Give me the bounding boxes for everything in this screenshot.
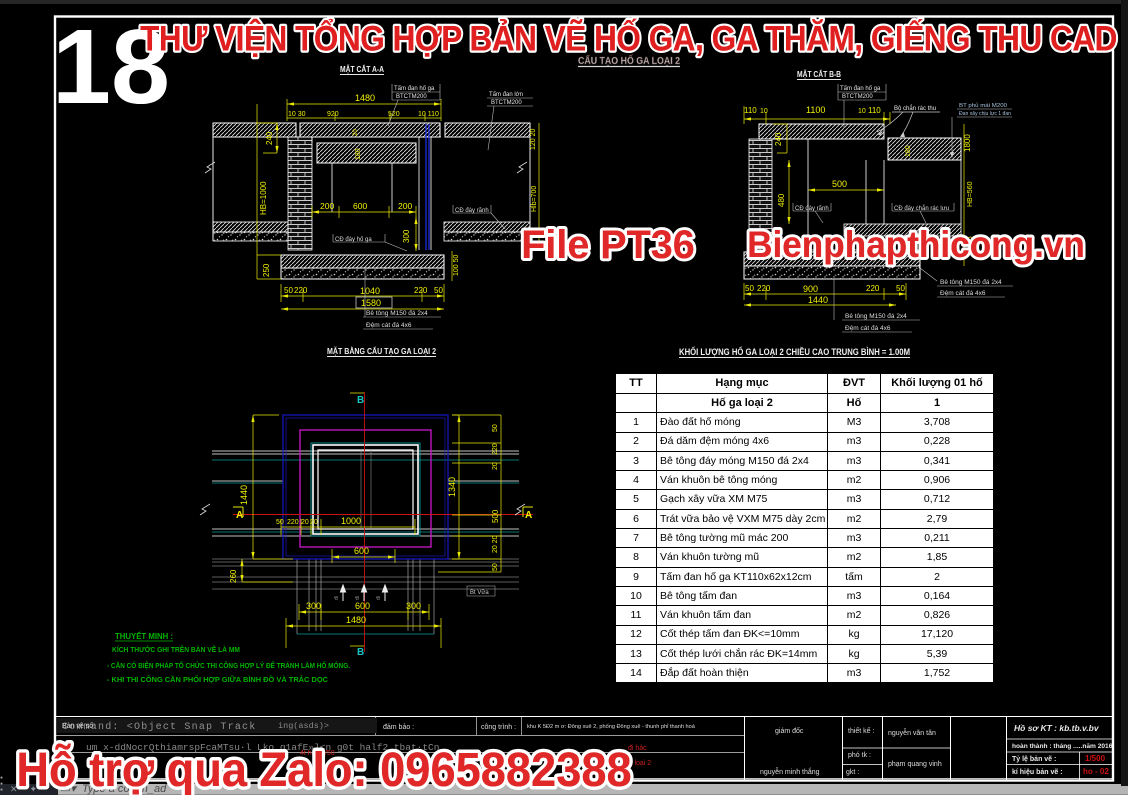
svg-text:KÍCH THƯỚC GHI TRÊN BẢN VẼ LÀ: KÍCH THƯỚC GHI TRÊN BẢN VẼ LÀ MM (112, 645, 240, 654)
svg-text:50: 50 (434, 286, 443, 295)
svg-text:phạm quang vinh: phạm quang vinh (888, 761, 942, 768)
svg-text:Bộ chắn rác thu: Bộ chắn rác thu (894, 105, 936, 112)
svg-text:200: 200 (320, 201, 334, 211)
svg-text:Hlb=700: Hlb=700 (531, 186, 538, 212)
svg-text:KHỐI LƯỢNG HỐ GA LOẠI 2 CHIỀU: KHỐI LƯỢNG HỐ GA LOẠI 2 CHIỀU CAO TRUNG … (679, 346, 910, 358)
svg-text:260: 260 (229, 569, 238, 583)
svg-text:- KHI THI CÔNG CẦN PHỐI HỢP GI: - KHI THI CÔNG CẦN PHỐI HỢP GIỮA BÌNH ĐỒ… (107, 674, 329, 684)
svg-text:Tấm đan hố ga: Tấm đan hố ga (394, 86, 435, 92)
svg-text:1440: 1440 (239, 485, 249, 505)
svg-text:BTCTM200: BTCTM200 (842, 94, 873, 100)
svg-text:10 110: 10 110 (418, 111, 439, 118)
svg-text:Tỷ lệ bản vẽ :: Tỷ lệ bản vẽ : (1012, 756, 1056, 763)
svg-text:nguyễn văn tân: nguyễn văn tân (888, 728, 936, 737)
svg-text:Bê tông M150 đá 2x4: Bê tông M150 đá 2x4 (845, 313, 907, 320)
svg-text:Đan xây chịu lực 1 đan: Đan xây chịu lực 1 đan (959, 111, 1011, 117)
svg-text:200: 200 (398, 201, 412, 211)
svg-text:220: 220 (414, 286, 428, 295)
svg-text:gkt :: gkt : (846, 769, 859, 776)
svg-text:THƯ VIỆN TỔNG HỢP BẢN VẼ HỐ GA: THƯ VIỆN TỔNG HỢP BẢN VẼ HỐ GA, GA THĂM,… (140, 18, 1117, 59)
svg-text:Bê tông M150 đá 2x4: Bê tông M150 đá 2x4 (940, 279, 1002, 286)
svg-text:MẶT CẮT B-B: MẶT CẮT B-B (797, 70, 841, 79)
svg-text:300: 300 (406, 601, 421, 611)
svg-text:240: 240 (774, 132, 783, 146)
svg-text:Đệm cát đá 4x6: Đệm cát đá 4x6 (940, 290, 986, 297)
svg-text:đi: đi (355, 596, 361, 600)
svg-text:đảm bảo :: đảm bảo : (383, 724, 414, 731)
svg-text:600: 600 (354, 546, 369, 556)
svg-text:BTCTM200: BTCTM200 (491, 100, 522, 106)
svg-text:Hồ sơ KT : kb.tb.v.bv: Hồ sơ KT : kb.tb.v.bv (1014, 723, 1100, 733)
svg-text:110: 110 (868, 106, 881, 115)
svg-text:A: A (525, 510, 532, 521)
svg-text:220: 220 (294, 286, 308, 295)
svg-text:10: 10 (858, 108, 866, 115)
svg-text:50: 50 (896, 284, 905, 293)
svg-text:20: 20 (492, 462, 499, 470)
svg-text:công trình :: công trình : (481, 724, 516, 731)
svg-text:110: 110 (744, 106, 757, 115)
svg-text:120 20: 120 20 (530, 128, 537, 150)
svg-text:300: 300 (306, 601, 321, 611)
svg-text:1480: 1480 (346, 615, 366, 625)
svg-text:920: 920 (327, 111, 339, 118)
svg-text:BT phủ mái M200: BT phủ mái M200 (959, 102, 1007, 109)
svg-text:Bienphapthicong.vn: Bienphapthicong.vn (747, 223, 1085, 265)
svg-text:BTCTM200: BTCTM200 (396, 94, 427, 100)
svg-text:Tấm đan hố ga: Tấm đan hố ga (840, 86, 881, 92)
svg-text:Hỗ trợ qua Zalo: 0965882388: Hỗ trợ qua Zalo: 0965882388 (16, 743, 631, 795)
svg-text:phó tk :: phó tk : (848, 752, 871, 759)
svg-text:thiết kế :: thiết kế : (848, 726, 875, 735)
svg-text:500: 500 (832, 179, 847, 189)
svg-text:1440: 1440 (808, 295, 828, 305)
svg-text:220: 220 (287, 519, 299, 526)
svg-text:1000: 1000 (341, 516, 361, 526)
svg-text:MẶT BẰNG CẤU TẠO GA LOẠI 2: MẶT BẰNG CẤU TẠO GA LOẠI 2 (327, 346, 436, 356)
svg-text:HB=560: HB=560 (967, 181, 974, 207)
svg-text:B: B (357, 395, 364, 406)
svg-text:1580: 1580 (361, 298, 381, 308)
svg-text:220: 220 (866, 284, 880, 293)
svg-text:500: 500 (491, 509, 500, 523)
svg-text:50: 50 (284, 286, 293, 295)
svg-text:1800: 1800 (963, 134, 972, 152)
svg-text:20 20: 20 20 (492, 535, 499, 553)
svg-text:250: 250 (262, 263, 271, 277)
svg-text:khu K 5Đ2 m ơ: Đông xuê 2, phố: khu K 5Đ2 m ơ: Đông xuê 2, phống Đông xu… (527, 723, 696, 730)
svg-text:giám đốc: giám đốc (775, 726, 804, 735)
svg-text:kí hiệu bản vẽ :: kí hiệu bản vẽ : (1012, 769, 1063, 776)
svg-text:ho - 02: ho - 02 (1083, 767, 1109, 776)
svg-text:50: 50 (492, 424, 499, 432)
svg-text:1/500: 1/500 (1085, 754, 1106, 763)
svg-text:100 50: 100 50 (453, 254, 460, 276)
svg-text:File PT36: File PT36 (521, 223, 694, 267)
svg-text:Đệm cát đá 4x6: Đệm cát đá 4x6 (366, 322, 412, 329)
svg-text:1340: 1340 (447, 477, 457, 497)
svg-text:ing(asds)>: ing(asds)> (278, 721, 329, 731)
svg-text:HB=1000: HB=1000 (259, 181, 268, 215)
svg-text:Bản vẽ số:: Bản vẽ số: (62, 721, 95, 730)
svg-text:1480: 1480 (355, 93, 375, 103)
svg-text:50: 50 (492, 563, 499, 571)
svg-text:520: 520 (388, 111, 400, 118)
svg-text:240: 240 (265, 131, 274, 145)
svg-text:50: 50 (276, 519, 284, 526)
svg-text:Bê tông M150 đá 2x4: Bê tông M150 đá 2x4 (366, 310, 428, 317)
svg-text:10: 10 (760, 108, 768, 115)
svg-text:Tấm đan lớn: Tấm đan lớn (489, 92, 523, 98)
svg-text:- CẦN CÓ BIỆN PHÁP TỔ CHỨC THI: - CẦN CÓ BIỆN PHÁP TỔ CHỨC THI CÔNG HỢP … (107, 660, 350, 670)
svg-text:hoàn thành : tháng .....năm 2: hoàn thành : tháng .....năm 2016 (1012, 743, 1113, 750)
svg-text:nguyễn minh thắng: nguyễn minh thắng (760, 767, 820, 776)
svg-text:50: 50 (745, 284, 754, 293)
svg-text:20: 20 (310, 519, 318, 526)
svg-text:MẶT CẮT A-A: MẶT CẮT A-A (340, 65, 384, 74)
svg-text:480: 480 (777, 193, 786, 207)
svg-text:900: 900 (803, 284, 818, 294)
svg-text:300: 300 (402, 229, 411, 243)
svg-text:đi: đi (334, 596, 340, 600)
svg-text:220: 220 (757, 284, 771, 293)
svg-text:1100: 1100 (806, 105, 825, 115)
svg-text:180: 180 (905, 145, 912, 157)
svg-text:20: 20 (353, 129, 359, 136)
svg-text:10 30: 10 30 (288, 111, 306, 118)
svg-text:B: B (357, 647, 364, 658)
svg-text:Bt Vữa: Bt Vữa (470, 590, 489, 596)
svg-text:Đệm cát đá 4x6: Đệm cát đá 4x6 (845, 325, 891, 332)
svg-text:180: 180 (355, 148, 362, 160)
svg-text:đi: đi (376, 596, 382, 600)
svg-text:A: A (236, 510, 243, 521)
svg-text:220: 220 (492, 443, 499, 455)
svg-text:1040: 1040 (360, 286, 380, 296)
svg-text:20: 20 (301, 519, 309, 526)
svg-text:600: 600 (353, 201, 367, 211)
svg-text:600: 600 (355, 601, 370, 611)
svg-text:THUYẾT MINH :: THUYẾT MINH : (115, 631, 173, 641)
